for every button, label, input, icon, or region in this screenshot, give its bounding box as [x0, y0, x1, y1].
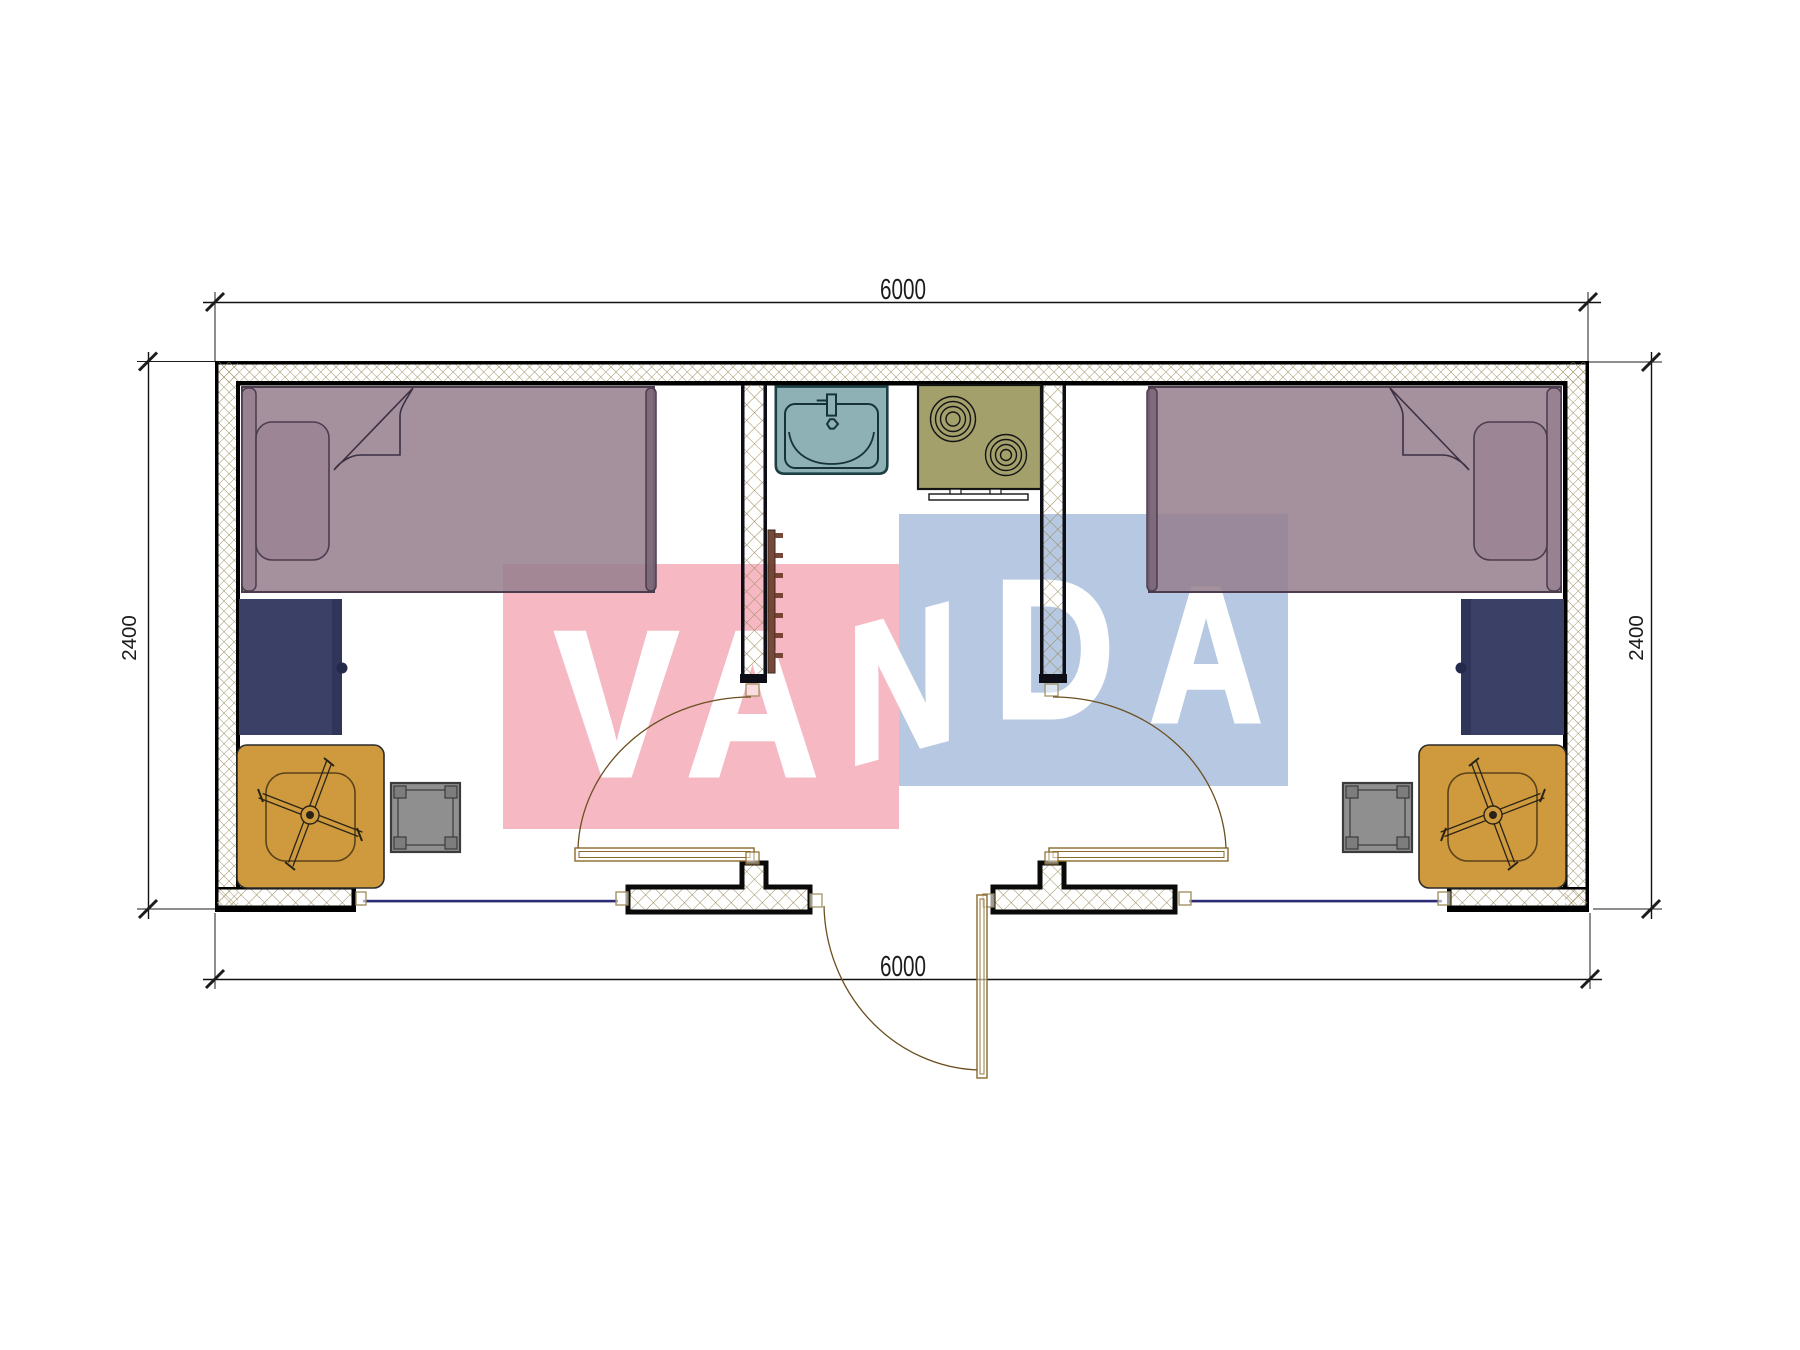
svg-text:6000: 6000 — [880, 274, 926, 306]
svg-text:2400: 2400 — [1625, 615, 1648, 661]
svg-text:2400: 2400 — [118, 615, 141, 661]
svg-text:N: N — [847, 559, 957, 808]
svg-text:6000: 6000 — [880, 951, 926, 983]
svg-text:V: V — [555, 589, 677, 819]
